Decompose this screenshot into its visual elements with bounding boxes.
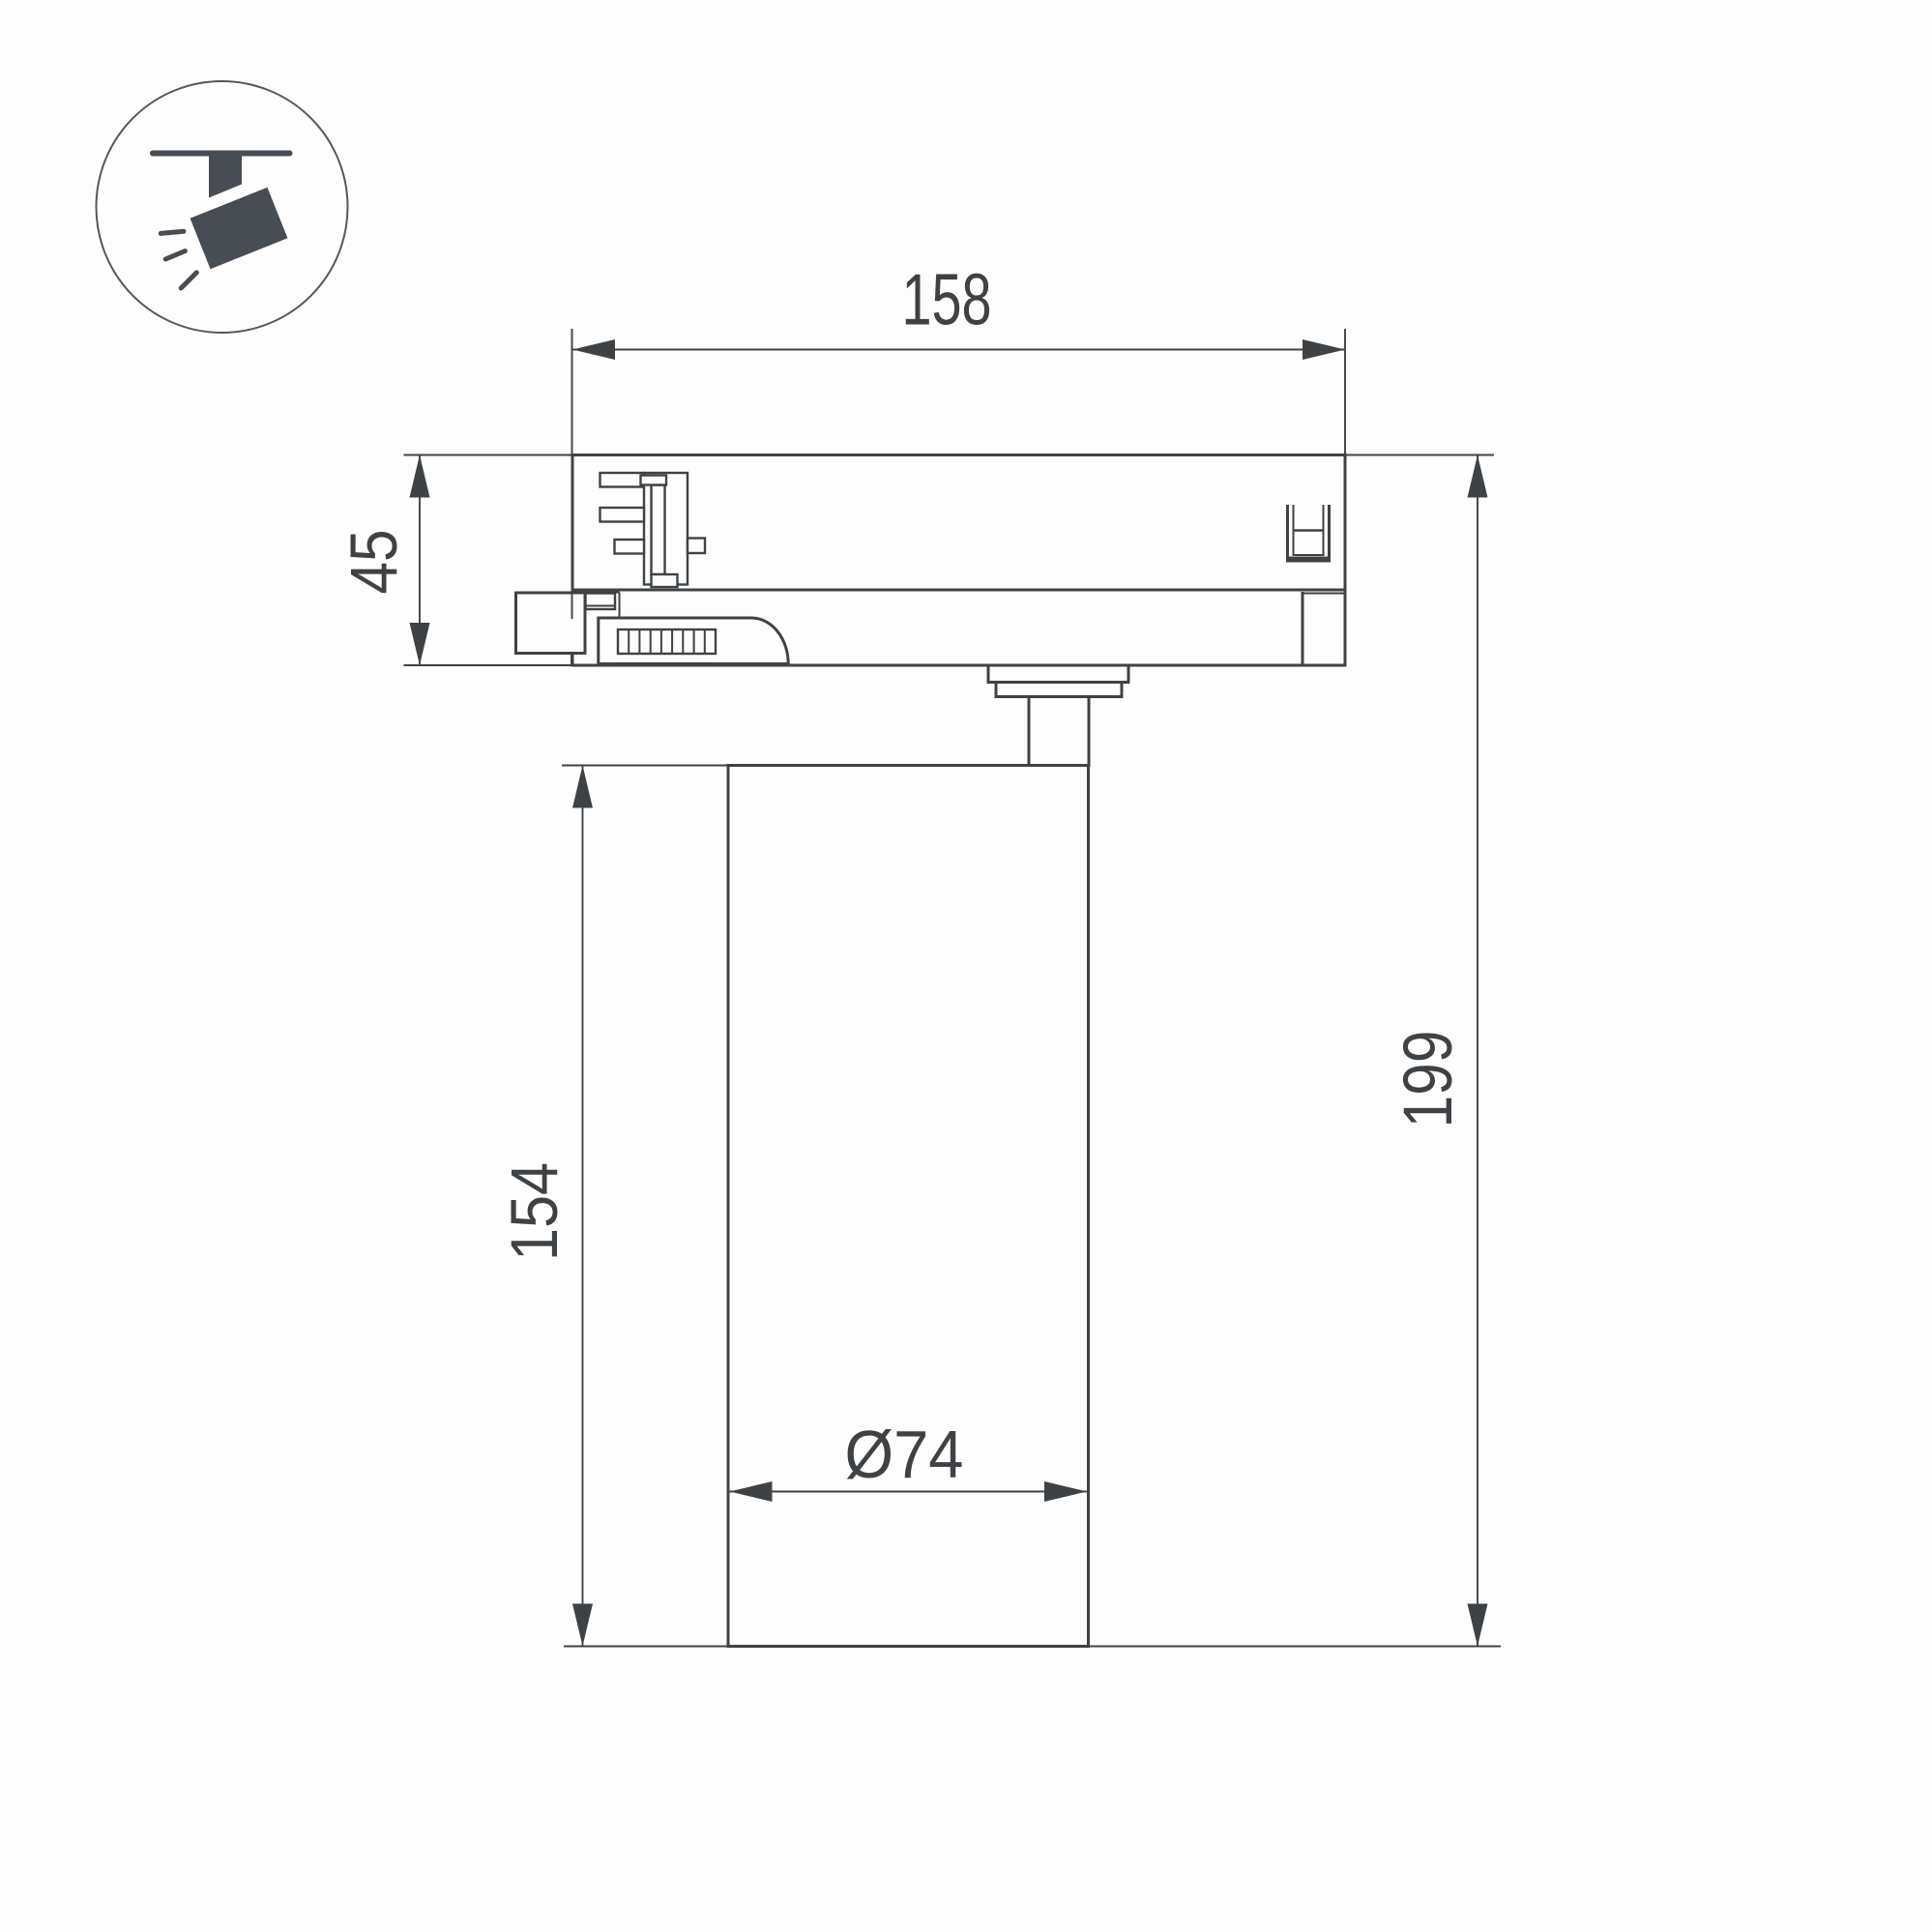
svg-text:Ø74: Ø74 — [845, 1417, 964, 1492]
svg-text:199: 199 — [1390, 1031, 1467, 1128]
svg-text:158: 158 — [902, 259, 992, 340]
svg-text:154: 154 — [497, 1162, 571, 1261]
svg-text:45: 45 — [337, 530, 411, 595]
